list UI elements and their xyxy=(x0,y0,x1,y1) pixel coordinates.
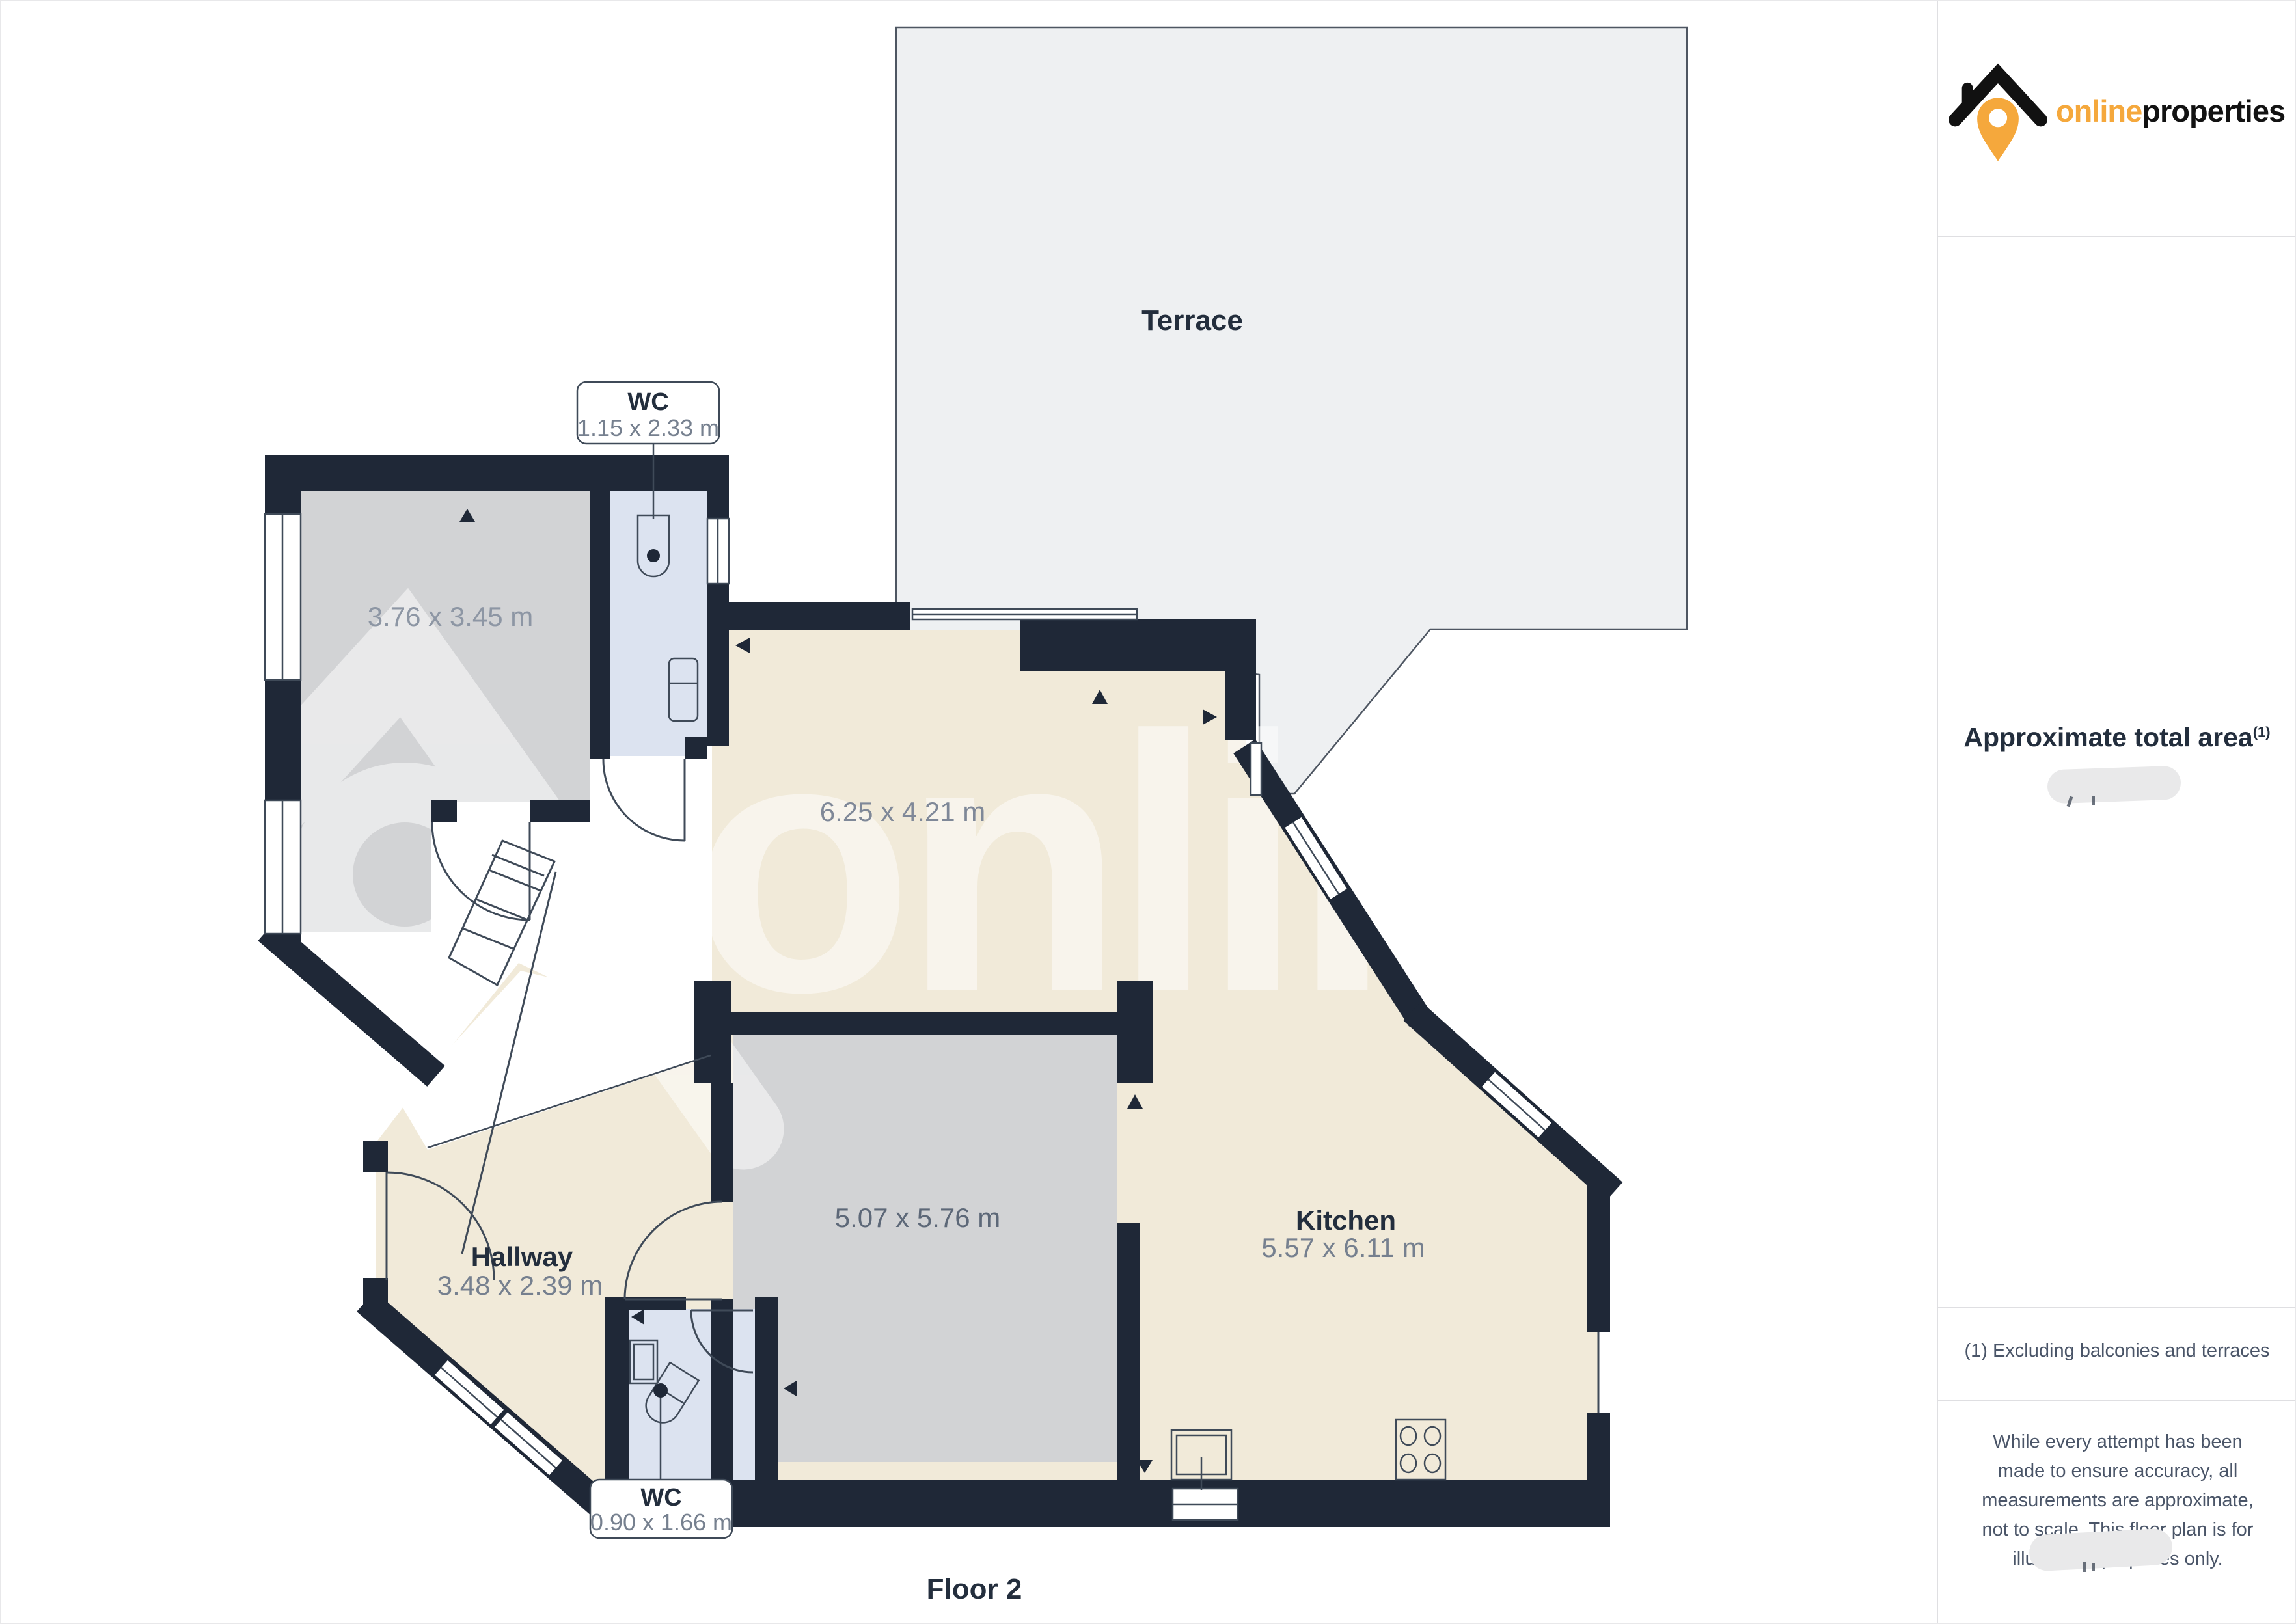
kitchen-dims: 5.57 x 6.11 m xyxy=(1261,1232,1425,1263)
wc-bottom-floor xyxy=(627,1309,756,1480)
hallway-dims: 3.48 x 2.39 m xyxy=(437,1270,603,1301)
room-top-left-dims: 3.76 x 3.45 m xyxy=(368,601,533,632)
wc-bottom-dims: 0.90 x 1.66 m xyxy=(590,1509,732,1536)
wc-top-title: WC xyxy=(627,388,668,416)
sink-icon xyxy=(638,515,669,576)
brand-name-properties: properties xyxy=(2142,94,2285,128)
terrace-label: Terrace xyxy=(1141,304,1243,336)
living-dims: 6.25 x 4.21 m xyxy=(820,796,985,827)
redaction-remnant xyxy=(2092,1563,2095,1571)
sidebar: onlineproperties Approximate total area(… xyxy=(1937,1,2296,1624)
watermark: onlinepro xyxy=(63,653,1937,1129)
drain-icon xyxy=(647,549,660,562)
brand-name: onlineproperties xyxy=(2056,93,2285,129)
leader-dot xyxy=(653,1383,668,1398)
center-room-floor xyxy=(733,1029,1117,1462)
total-area-heading: Approximate total area(1) xyxy=(1963,722,2270,752)
sidebar-divider xyxy=(1938,1307,2296,1308)
redacted-area-value xyxy=(2047,765,2181,804)
footnote-text: (1) Excluding balconies and terraces xyxy=(1938,1340,2296,1362)
wc-top-dims: 1.15 x 2.33 m xyxy=(577,414,719,441)
brand-logo-icon xyxy=(1949,59,2047,163)
floorplan-drawing: onlinepro xyxy=(1,1,1937,1624)
room-center-dims: 5.07 x 5.76 m xyxy=(835,1202,1000,1233)
redaction-remnant xyxy=(2083,1562,2086,1572)
toilet-icon xyxy=(669,658,698,721)
brand-name-online: online xyxy=(2056,94,2142,128)
sidebar-divider xyxy=(1938,236,2296,237)
footnote-marker: (1) xyxy=(2253,724,2271,740)
total-area-block: Approximate total area(1) xyxy=(1938,722,2296,753)
hallway-label: Hallway xyxy=(471,1241,573,1272)
redaction-remnant xyxy=(2092,796,2095,805)
floorplan-page: onlinepro xyxy=(0,0,2296,1624)
sidebar-divider xyxy=(1938,1400,2296,1401)
callout-wc-bottom: WC 0.90 x 1.66 m xyxy=(590,1480,732,1538)
redacted-signature xyxy=(2029,1528,2174,1571)
wc-bottom-title: WC xyxy=(640,1484,681,1511)
brand: onlineproperties xyxy=(1938,59,2296,163)
stove-icon xyxy=(1396,1420,1445,1480)
callout-wc-top: WC 1.15 x 2.33 m xyxy=(577,382,719,444)
floor-label: Floor 2 xyxy=(927,1573,1022,1605)
kitchen-label: Kitchen xyxy=(1296,1205,1396,1236)
